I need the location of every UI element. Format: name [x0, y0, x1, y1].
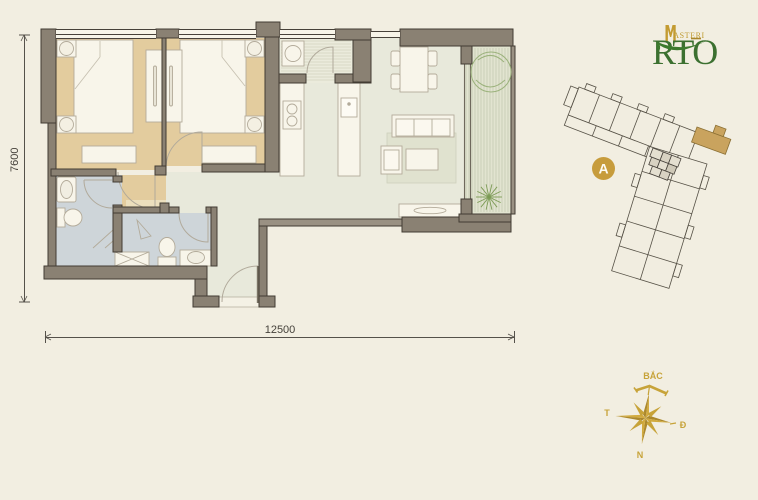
svg-text:12500: 12500	[265, 324, 296, 336]
svg-text:7600: 7600	[9, 148, 21, 172]
svg-text:A: A	[598, 161, 608, 177]
svg-text:T: T	[604, 408, 610, 418]
svg-text:BẮC: BẮC	[643, 371, 663, 381]
svg-text:RTO: RTO	[652, 32, 717, 72]
svg-text:Đ: Đ	[680, 420, 687, 430]
svg-text:N: N	[637, 450, 644, 460]
